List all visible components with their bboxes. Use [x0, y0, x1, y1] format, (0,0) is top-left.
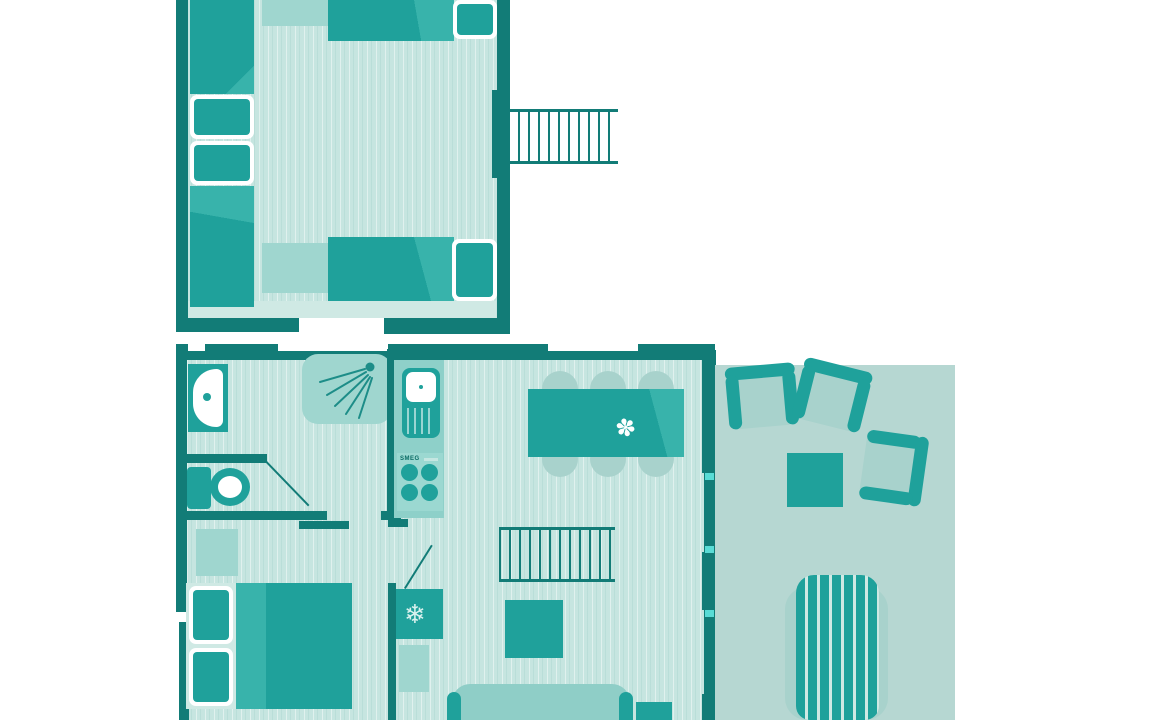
single-bed-bottom-right: [328, 237, 454, 301]
terrace-armchair: [856, 429, 929, 507]
pillow: [452, 239, 497, 301]
single-bed-left-bottom: [190, 186, 254, 307]
stove-brand-label: SMEG: [400, 456, 420, 462]
upper-stairs-wall-block: [492, 90, 508, 178]
nightstand: [262, 0, 328, 26]
shower-spray-icon: [302, 354, 392, 424]
wall-nub: [254, 348, 262, 359]
bathroom-wall: [299, 521, 349, 529]
sofa-backrest: [452, 684, 630, 720]
upper-wall-bottom-left: [176, 318, 299, 332]
upper-wall-left: [176, 0, 188, 331]
flower-icon: ✽: [613, 415, 639, 443]
main-wall-top-block: [205, 344, 278, 354]
main-wall-right-block: [702, 694, 716, 720]
toilet-icon: [210, 468, 250, 506]
sun-lounger: [796, 575, 879, 720]
double-bed-blanket: [236, 583, 352, 709]
armchair-seat: [735, 375, 789, 429]
shower: [302, 354, 392, 424]
single-bed-left-top: [190, 0, 254, 94]
window-accent: [705, 473, 714, 480]
burner: [401, 484, 418, 501]
upper-wall-bottom-right: [384, 318, 510, 334]
drainboard: [407, 408, 435, 434]
burner: [421, 484, 438, 501]
washbasin-drain: [203, 393, 211, 401]
nightstand: [262, 243, 328, 293]
terrace-table: [787, 453, 843, 507]
coffee-table: [505, 600, 563, 658]
stove-dash: [424, 458, 438, 461]
single-bed-top-right: [328, 0, 454, 41]
sofa-armrest: [447, 692, 461, 720]
main-stairs: [499, 527, 615, 582]
window-accent: [705, 546, 714, 553]
kitchen-cabinet: [399, 645, 429, 692]
bathroom-wall: [187, 511, 327, 520]
window-accent: [705, 610, 714, 617]
toilet-tank: [187, 467, 211, 509]
main-wall-right-block: [702, 552, 716, 610]
bathroom-wall: [187, 454, 267, 463]
sofa-armrest: [619, 692, 633, 720]
burner: [401, 464, 418, 481]
snowflake-icon: ❄: [404, 601, 426, 627]
pillow: [453, 0, 497, 39]
pillow: [189, 586, 233, 644]
burner: [421, 464, 438, 481]
fridge: ❄: [391, 589, 443, 639]
main-wall-left-upper: [176, 348, 187, 612]
main-wall-top-block: [388, 344, 548, 354]
dining-table: ✽: [528, 389, 684, 457]
pillow: [190, 141, 254, 185]
sink-drain: [419, 385, 423, 389]
pillow: [190, 95, 254, 139]
floor-plan: SMEG ❄: [0, 0, 1160, 720]
bedroom-wall-nub: [388, 519, 408, 527]
nightstand: [196, 529, 238, 576]
pillow: [189, 648, 233, 706]
terrace-armchair: [724, 362, 799, 432]
main-wall-right-block: [702, 350, 716, 473]
bedroom-wall: [388, 583, 396, 720]
upper-stairs: [508, 109, 618, 164]
side-table: [636, 702, 672, 720]
